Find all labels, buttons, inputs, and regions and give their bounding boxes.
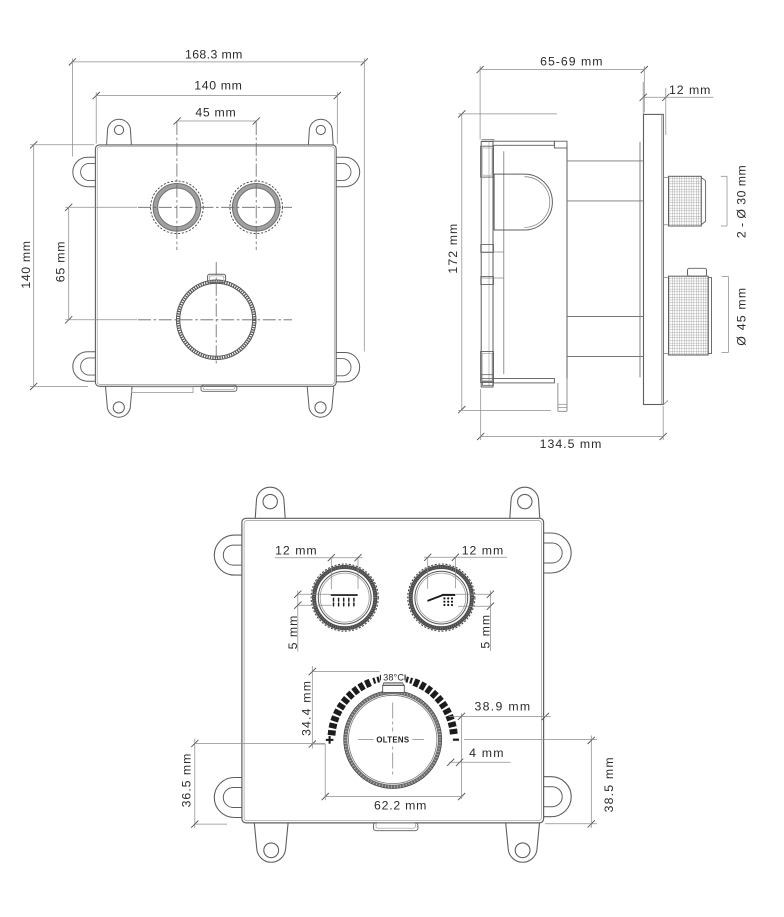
svg-text:34.4 mm: 34.4 mm	[300, 680, 314, 736]
svg-text:12 mm: 12 mm	[669, 83, 711, 97]
svg-text:4 mm: 4 mm	[469, 746, 505, 760]
svg-text:38.9 mm: 38.9 mm	[475, 700, 532, 714]
svg-text:140 mm: 140 mm	[19, 240, 33, 288]
svg-text:62.2 mm: 62.2 mm	[374, 799, 427, 813]
svg-text:36.5 mm: 36.5 mm	[179, 753, 193, 808]
svg-text:38.5 mm: 38.5 mm	[602, 756, 616, 812]
svg-text:168.3 mm: 168.3 mm	[185, 47, 243, 61]
svg-text:140 mm: 140 mm	[194, 78, 242, 92]
svg-text:12 mm: 12 mm	[462, 543, 505, 557]
svg-text:65-69 mm: 65-69 mm	[540, 55, 603, 69]
svg-text:172 mm: 172 mm	[446, 223, 460, 274]
svg-text:2 - Ø 30 mm: 2 - Ø 30 mm	[735, 165, 749, 238]
svg-text:134.5 mm: 134.5 mm	[540, 437, 603, 451]
svg-text:38°C: 38°C	[383, 673, 404, 683]
svg-text:65 mm: 65 mm	[54, 241, 68, 283]
svg-text:OLTENS: OLTENS	[376, 735, 409, 744]
svg-text:45 mm: 45 mm	[195, 106, 236, 120]
svg-text:Ø 45 mm: Ø 45 mm	[735, 287, 749, 346]
svg-text:12 mm: 12 mm	[275, 544, 318, 558]
